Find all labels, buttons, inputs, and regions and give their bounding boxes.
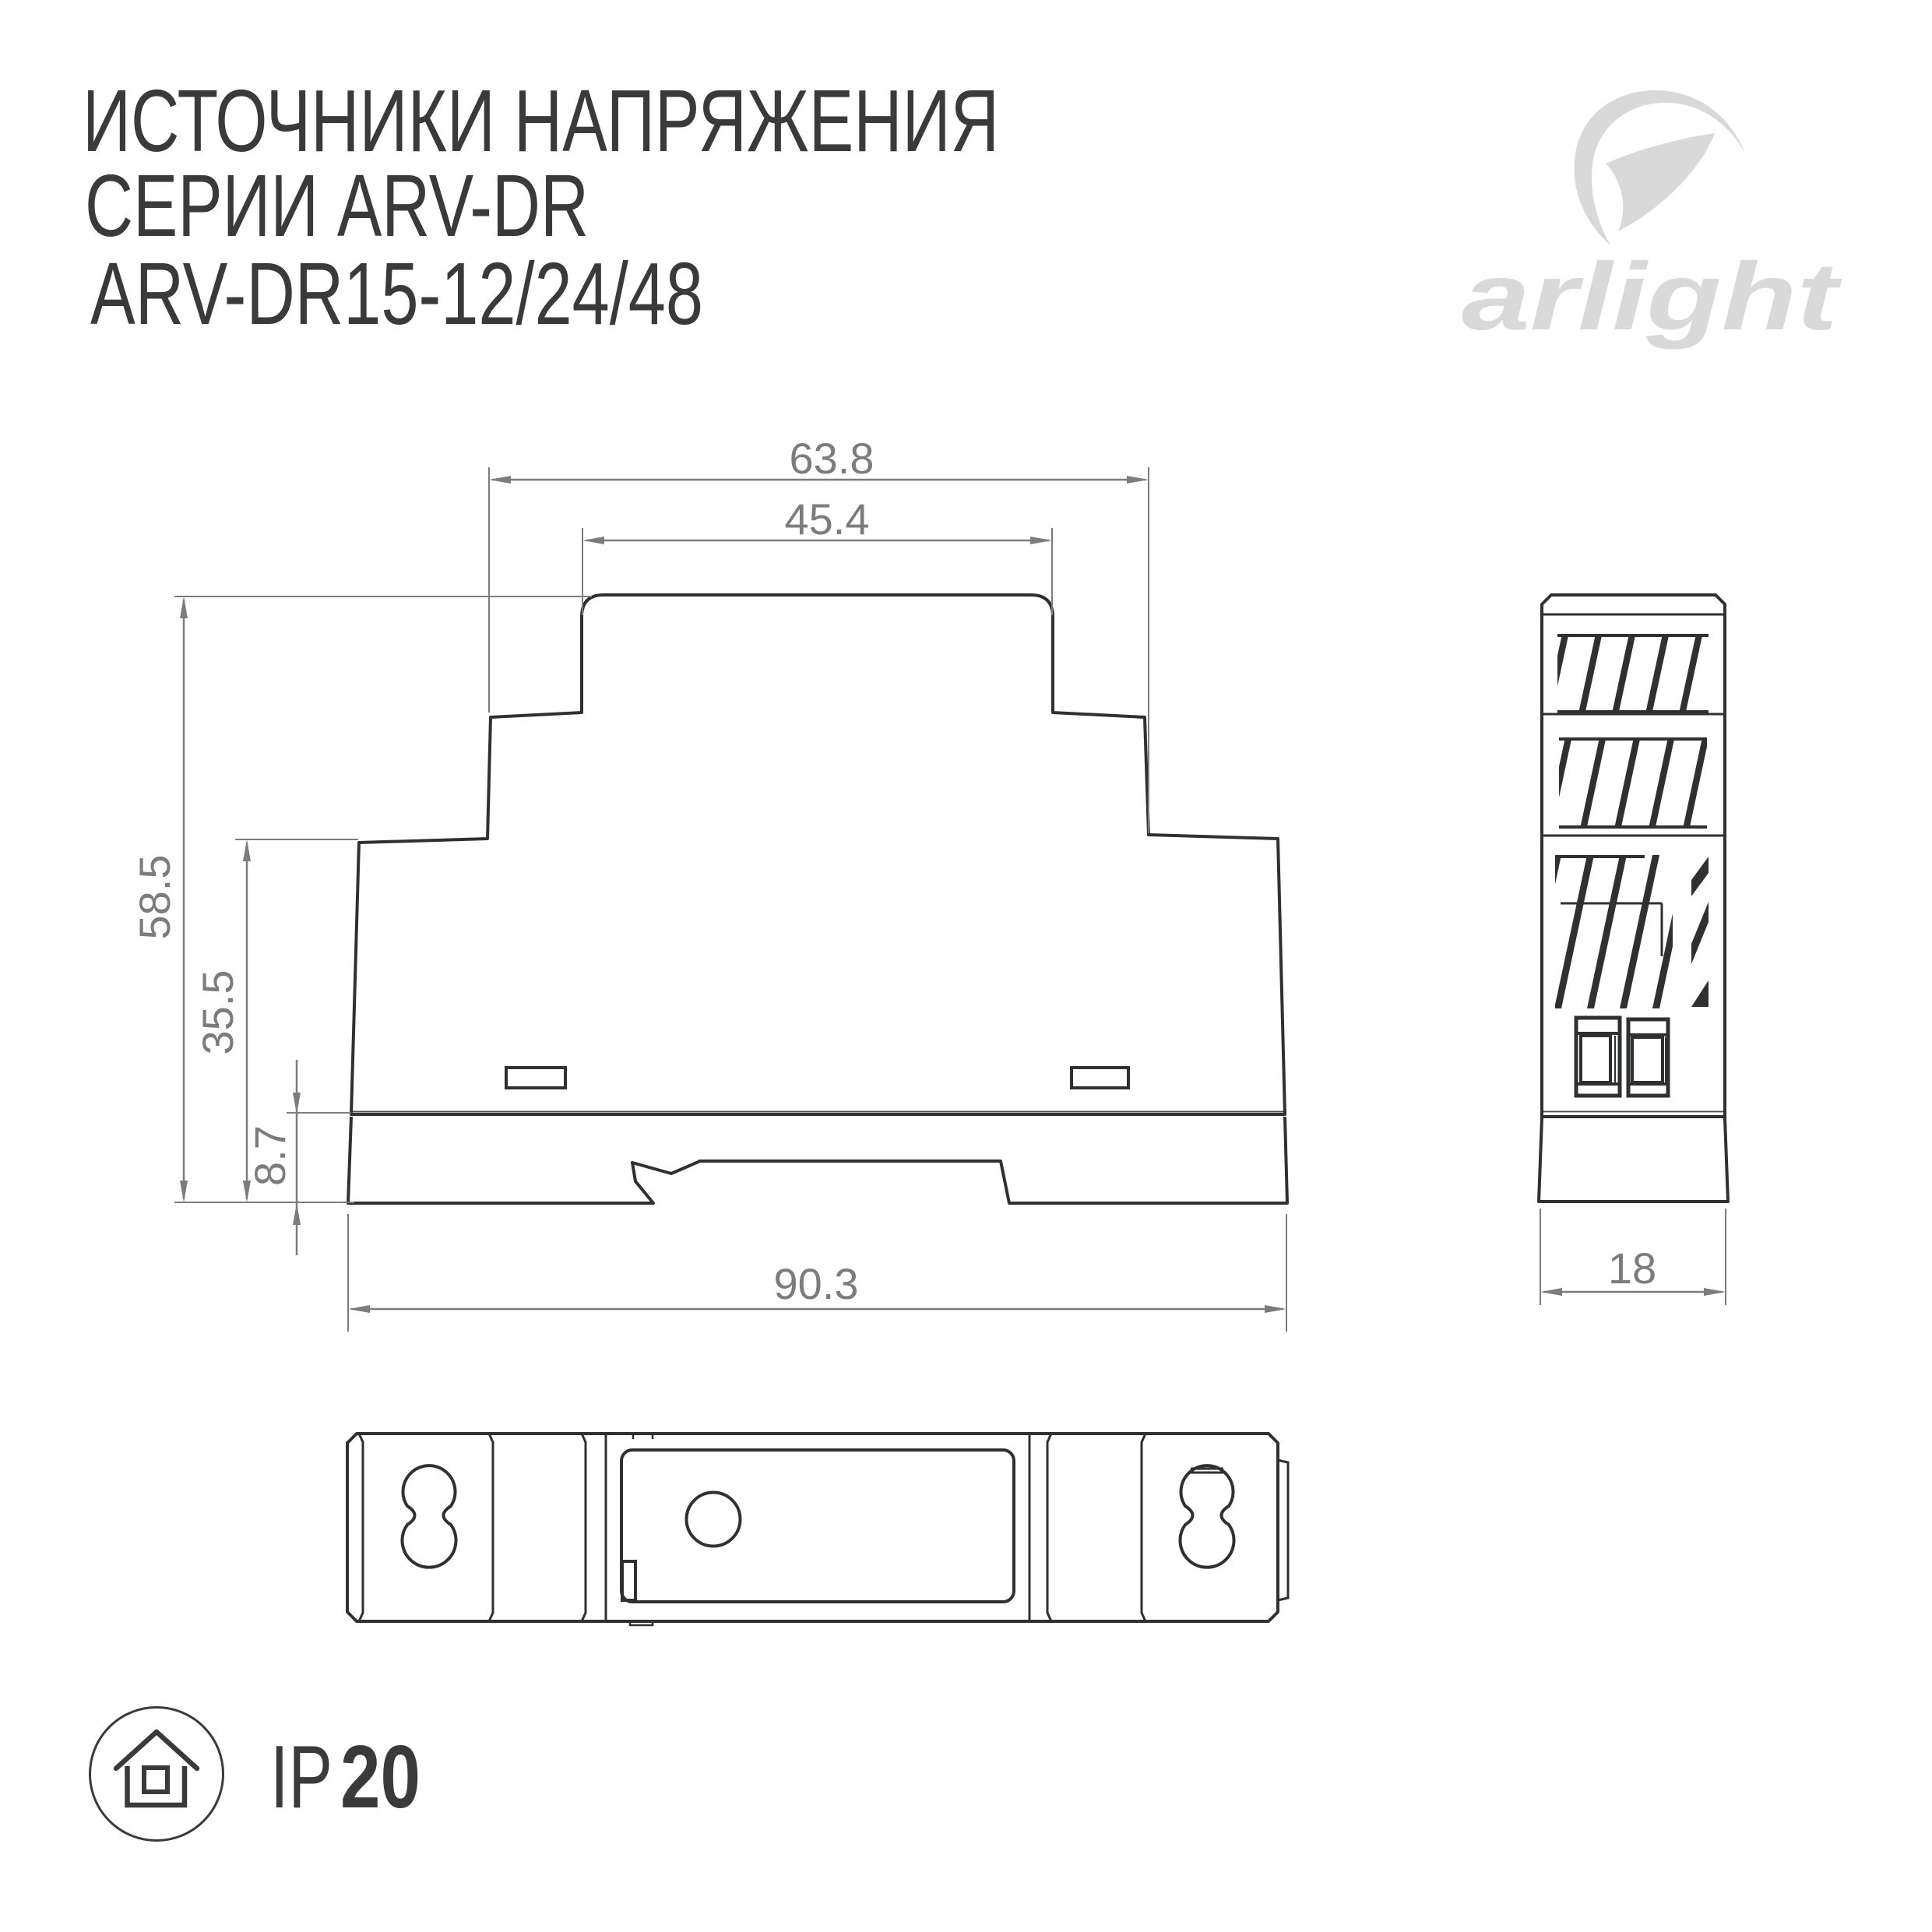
svg-text:35.5: 35.5 [193,970,242,1055]
svg-text:58.5: 58.5 [130,855,179,940]
svg-text:СЕРИИ ARV-DR: СЕРИИ ARV-DR [85,157,589,255]
svg-text:18: 18 [1608,1244,1656,1293]
svg-text:IP: IP [270,1728,333,1827]
svg-text:63.8: 63.8 [790,434,875,483]
svg-text:ARV-DR15-12/24/48: ARV-DR15-12/24/48 [90,245,703,343]
svg-text:8.7: 8.7 [245,1125,294,1186]
svg-text:90.3: 90.3 [774,1259,859,1308]
svg-text:20: 20 [340,1728,421,1827]
svg-text:45.4: 45.4 [785,494,870,544]
svg-text:ИСТОЧНИКИ НАПРЯЖЕНИЯ: ИСТОЧНИКИ НАПРЯЖЕНИЯ [83,72,999,170]
svg-text:arlight: arlight [1462,244,1842,350]
